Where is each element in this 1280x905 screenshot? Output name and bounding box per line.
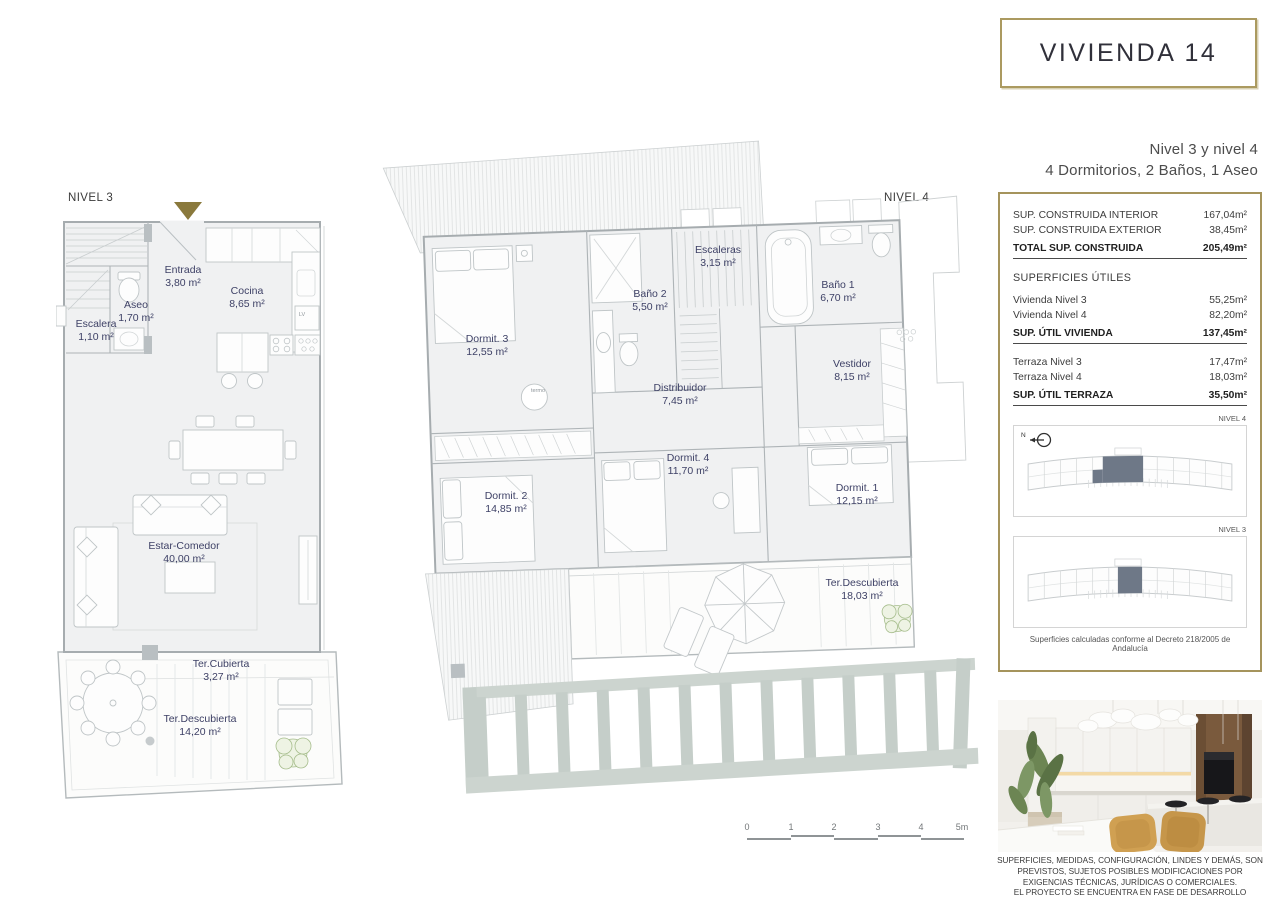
area-label: SUP. CONSTRUIDA EXTERIOR — [1013, 223, 1162, 238]
unit-title-box: VIVIENDA 14 — [1000, 18, 1257, 88]
area-label: SUP. ÚTIL VIVIENDA — [1013, 326, 1113, 341]
room-name: Dormit. 4 — [633, 452, 743, 465]
disclaimer-line: PREVISTOS, SUJETOS POSIBLES MODIFICACION… — [996, 867, 1264, 878]
room-name: Estar-Comedor — [129, 540, 239, 553]
room-area: 11,70 m² — [633, 465, 743, 478]
entrance-opening — [160, 221, 204, 224]
area-row: SUP. CONSTRUIDA EXTERIOR 38,45m² — [1013, 223, 1247, 238]
scale-tick: 0 — [736, 822, 758, 832]
room-label-dormit2: Dormit. 2 14,85 m² — [451, 490, 561, 516]
room-area: 12,15 m² — [802, 495, 912, 508]
keyplan-label-nivel3: NIVEL 3 — [1014, 525, 1246, 534]
scale-tick: 4 — [910, 822, 932, 832]
room-label-escaleras: Escaleras 3,15 m² — [663, 244, 773, 270]
divider — [1013, 258, 1247, 259]
decree-footnote: Superficies calculadas conforme al Decre… — [1013, 635, 1247, 653]
room-label-estar: Estar-Comedor 40,00 m² — [129, 540, 239, 566]
room-label-dormit4: Dormit. 4 11,70 m² — [633, 452, 743, 478]
room-name: Ter.Descubierta — [145, 713, 255, 726]
room-name: Dormit. 2 — [451, 490, 561, 503]
room-label-terdescubierta-n3: Ter.Descubierta 14,20 m² — [145, 713, 255, 739]
room-name: Ter.Descubierta — [807, 577, 917, 590]
unit-highlight — [1118, 567, 1142, 594]
room-area: 3,15 m² — [663, 257, 773, 270]
area-value: 205,49m² — [1203, 241, 1247, 256]
room-name: Distribuidor — [625, 382, 735, 395]
area-value: 167,04m² — [1203, 208, 1247, 223]
room-name: Baño 1 — [783, 279, 893, 292]
bed-dormit2 — [440, 475, 535, 564]
area-row: Vivienda Nivel 4 82,20m² — [1013, 308, 1247, 323]
area-label: SUP. ÚTIL TERRAZA — [1013, 388, 1113, 403]
room-label-vestidor: Vestidor 8,15 m² — [797, 358, 907, 384]
area-row-total: TOTAL SUP. CONSTRUIDA 205,49m² — [1013, 241, 1247, 256]
room-name: Dormit. 3 — [432, 333, 542, 346]
disclaimer-line: SUPERFICIES, MEDIDAS, CONFIGURACIÓN, LIN… — [996, 856, 1264, 867]
area-label: Vivienda Nivel 4 — [1013, 308, 1087, 323]
area-value: 17,47m² — [1209, 355, 1247, 370]
room-area: 6,70 m² — [783, 292, 893, 305]
room-area: 3,27 m² — [166, 671, 276, 684]
area-value: 137,45m² — [1203, 326, 1247, 341]
scale-tick: 5m — [951, 822, 973, 832]
room-name: Escaleras — [663, 244, 773, 257]
room-name: Aseo — [81, 299, 191, 312]
room-area: 40,00 m² — [129, 553, 239, 566]
scale-tick: 1 — [780, 822, 802, 832]
area-label: TOTAL SUP. CONSTRUIDA — [1013, 241, 1143, 256]
room-label-aseo: Aseo 1,70 m² — [81, 299, 191, 325]
rooms-line: 4 Dormitorios, 2 Baños, 1 Aseo — [1045, 160, 1258, 181]
room-label-dormit3: Dormit. 3 12,55 m² — [432, 333, 542, 359]
room-area: 14,85 m² — [451, 503, 561, 516]
room-name: Ter.Cubierta — [166, 658, 276, 671]
areas-panel: SUP. CONSTRUIDA INTERIOR 167,04m² SUP. C… — [998, 192, 1262, 672]
dishwasher-label: LV — [295, 312, 309, 318]
room-label-tercubierta: Ter.Cubierta 3,27 m² — [166, 658, 276, 684]
room-name: Cocina — [192, 285, 302, 298]
room-label-distribuidor: Distribuidor 7,45 m² — [625, 382, 735, 408]
keyplan-label-nivel4: NIVEL 4 — [1014, 414, 1246, 423]
room-name: Baño 2 — [595, 288, 705, 301]
brochure-page: NIVEL 3 — [0, 0, 1280, 905]
plant — [276, 738, 311, 769]
area-value: 35,50m² — [1209, 388, 1247, 403]
room-label-bano2: Baño 2 5,50 m² — [595, 288, 705, 314]
area-label: Terraza Nivel 4 — [1013, 370, 1082, 385]
area-row: Terraza Nivel 4 18,03m² — [1013, 370, 1247, 385]
unit-title: VIVIENDA 14 — [1040, 39, 1218, 68]
keyplan-nivel3 — [1013, 536, 1247, 628]
room-label-cocina: Cocina 8,65 m² — [192, 285, 302, 311]
unit-subtitle: Nivel 3 y nivel 4 4 Dormitorios, 2 Baños… — [1045, 139, 1258, 181]
scale-bar: 0 1 2 3 4 5m — [744, 822, 970, 848]
area-label: Vivienda Nivel 3 — [1013, 293, 1087, 308]
kitchen-photo — [998, 700, 1262, 852]
area-row-total: SUP. ÚTIL VIVIENDA 137,45m² — [1013, 326, 1247, 341]
room-area: 8,65 m² — [192, 298, 302, 311]
area-label: Terraza Nivel 3 — [1013, 355, 1082, 370]
area-row: SUP. CONSTRUIDA INTERIOR 167,04m² — [1013, 208, 1247, 223]
room-area: 18,03 m² — [807, 590, 917, 603]
room-area: 12,55 m² — [432, 346, 542, 359]
roof-hatch-bottom — [425, 569, 573, 721]
room-name: Entrada — [128, 264, 238, 277]
levels-line: Nivel 3 y nivel 4 — [1045, 139, 1258, 160]
area-label: SUP. CONSTRUIDA INTERIOR — [1013, 208, 1158, 223]
room-name: Dormit. 1 — [802, 482, 912, 495]
area-value: 38,45m² — [1209, 223, 1247, 238]
room-area: 8,15 m² — [797, 371, 907, 384]
room-area: 1,10 m² — [41, 331, 151, 344]
area-value: 18,03m² — [1209, 370, 1247, 385]
room-label-bano1: Baño 1 6,70 m² — [783, 279, 893, 305]
useful-areas-title: SUPERFICIES ÚTILES — [1013, 272, 1247, 284]
plant-n4 — [882, 604, 913, 633]
north-indicator: N — [1021, 432, 1053, 448]
area-row: Vivienda Nivel 3 55,25m² — [1013, 293, 1247, 308]
keyplan-nivel4: N — [1013, 425, 1247, 517]
water-heater-label: termo — [527, 388, 549, 394]
room-area: 1,70 m² — [81, 312, 191, 325]
room-name: Vestidor — [797, 358, 907, 371]
room-area: 14,20 m² — [145, 726, 255, 739]
area-value: 55,25m² — [1209, 293, 1247, 308]
north-label: N — [1021, 432, 1026, 439]
unit-highlight — [1103, 456, 1143, 483]
entrance-arrow-icon — [174, 202, 202, 220]
disclaimer-line: EL PROYECTO SE ENCUENTRA EN FASE DE DESA… — [996, 888, 1264, 899]
area-row: Terraza Nivel 3 17,47m² — [1013, 355, 1247, 370]
area-row-total: SUP. ÚTIL TERRAZA 35,50m² — [1013, 388, 1247, 403]
room-label-dormit1: Dormit. 1 12,15 m² — [802, 482, 912, 508]
disclaimer-line: EXIGENCIAS TÉCNICAS, JURÍDICAS O COMERCI… — [996, 878, 1264, 889]
divider — [1013, 405, 1247, 406]
legal-disclaimer: SUPERFICIES, MEDIDAS, CONFIGURACIÓN, LIN… — [996, 856, 1264, 899]
room-label-terdescubierta-n4: Ter.Descubierta 18,03 m² — [807, 577, 917, 603]
scale-tick: 3 — [867, 822, 889, 832]
room-area: 5,50 m² — [595, 301, 705, 314]
room-area: 7,45 m² — [625, 395, 735, 408]
scale-tick: 2 — [823, 822, 845, 832]
keyplan-map-n3 — [1014, 537, 1246, 627]
north-arrow-icon — [1027, 432, 1053, 448]
area-value: 82,20m² — [1209, 308, 1247, 323]
